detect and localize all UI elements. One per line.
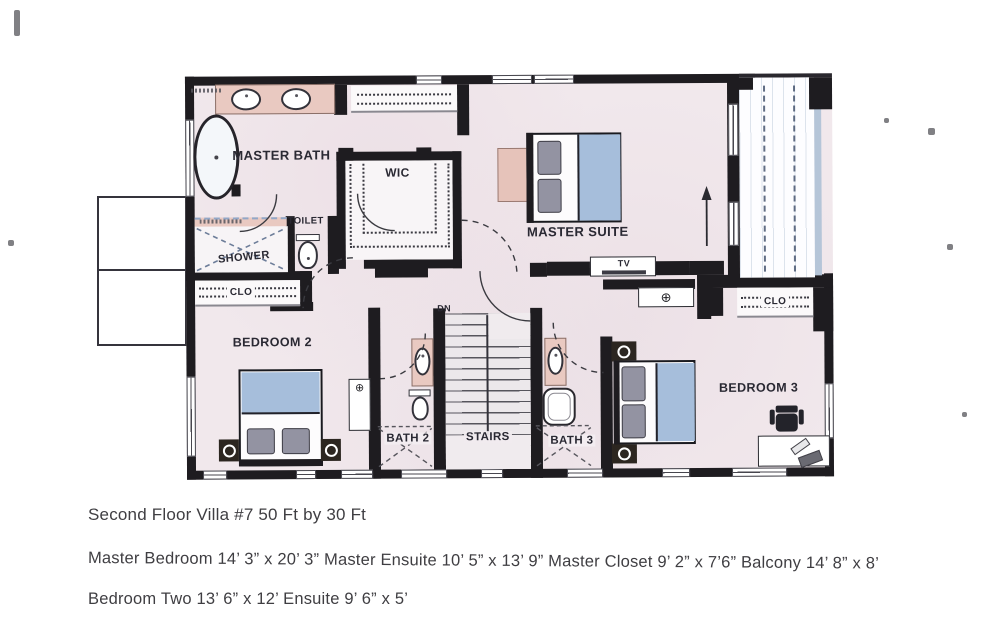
shower-x-lines [197,228,286,270]
room-label-clo-right: CLO [761,296,789,307]
door-arc-bedroom2 [303,258,353,308]
room-label-bath3: BATH 3 [548,435,595,447]
direction-arrow-head [702,186,712,200]
plan-linework [185,73,834,479]
room-label-stairs: STAIRS [464,431,512,443]
scan-speck [962,412,967,417]
room-label-bath2: BATH 2 [384,432,431,444]
door-arc-bath [240,194,277,231]
label-dn: DN [437,303,451,313]
lower-roof-outline-upper [97,196,187,271]
room-label-bedroom3: BEDROOM 3 [719,380,798,394]
scan-speck [14,10,20,36]
floor-plan: TV ⊕ ⊕ [185,73,834,479]
door-arc-master-suite [480,271,530,321]
caption-dimensions-bedroom2: Bedroom Two 13’ 6” x 12’ Ensuite 9’ 6” x… [88,590,408,609]
room-label-master-bath: MASTER BATH [232,147,330,163]
room-label-bedroom2: BEDROOM 2 [233,335,312,349]
crossed-circle-icon: ⊕ [355,383,364,394]
scan-speck [8,240,14,246]
door-arc-bedroom3 [553,323,603,373]
scan-speck [884,118,889,123]
scanned-floor-plan-sheet: TV ⊕ ⊕ [0,0,987,623]
door-arc-bath2 [380,333,425,378]
room-label-wic: WIC [385,166,410,180]
door-arc-toilet [358,194,395,231]
caption-dimensions-master: Master Bedroom 14’ 3” x 20’ 3” Master En… [88,549,879,574]
door-arc-wic [462,220,517,275]
caption-title: Second Floor Villa #7 50 Ft by 30 Ft [88,505,366,525]
crossed-circle-icon: ⊕ [661,291,672,304]
room-label-toilet: TOILET [288,215,324,226]
scan-speck [928,128,935,135]
lower-roof-outline-lower [97,269,187,346]
scan-speck [947,244,953,250]
room-label-master-suite: MASTER SUITE [527,224,629,240]
room-label-clo-left: CLO [227,287,255,298]
